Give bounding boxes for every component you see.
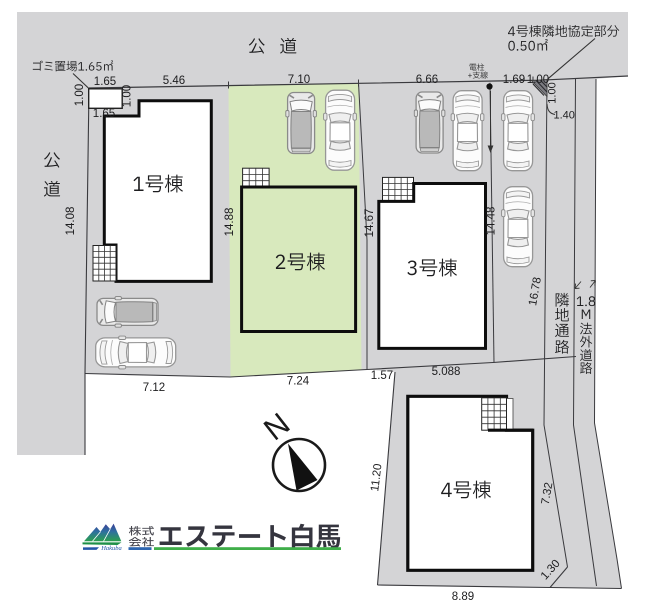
svg-text:1.69: 1.69 [503,74,525,86]
svg-text:5.46: 5.46 [163,75,185,87]
svg-text:14.88: 14.88 [224,208,236,237]
svg-text:14.08: 14.08 [65,207,77,236]
svg-text:6.66: 6.66 [416,74,438,86]
svg-text:7.12: 7.12 [143,382,165,394]
svg-text:14.67: 14.67 [364,209,376,238]
svg-text:Hakuba: Hakuba [100,545,122,552]
svg-text:1.57: 1.57 [371,370,393,382]
svg-text:14.48: 14.48 [486,207,498,236]
svg-text:1.00: 1.00 [74,84,86,106]
svg-text:1.40: 1.40 [554,110,575,122]
svg-text:1.00: 1.00 [122,85,134,107]
svg-text:7.10: 7.10 [288,74,310,86]
svg-text:1.65: 1.65 [94,76,116,88]
svg-text:1.65: 1.65 [93,108,115,120]
svg-text:5.088: 5.088 [432,366,461,378]
svg-text:8.89: 8.89 [452,591,474,603]
svg-text:1.00: 1.00 [547,82,559,103]
svg-text:7.24: 7.24 [287,376,310,388]
